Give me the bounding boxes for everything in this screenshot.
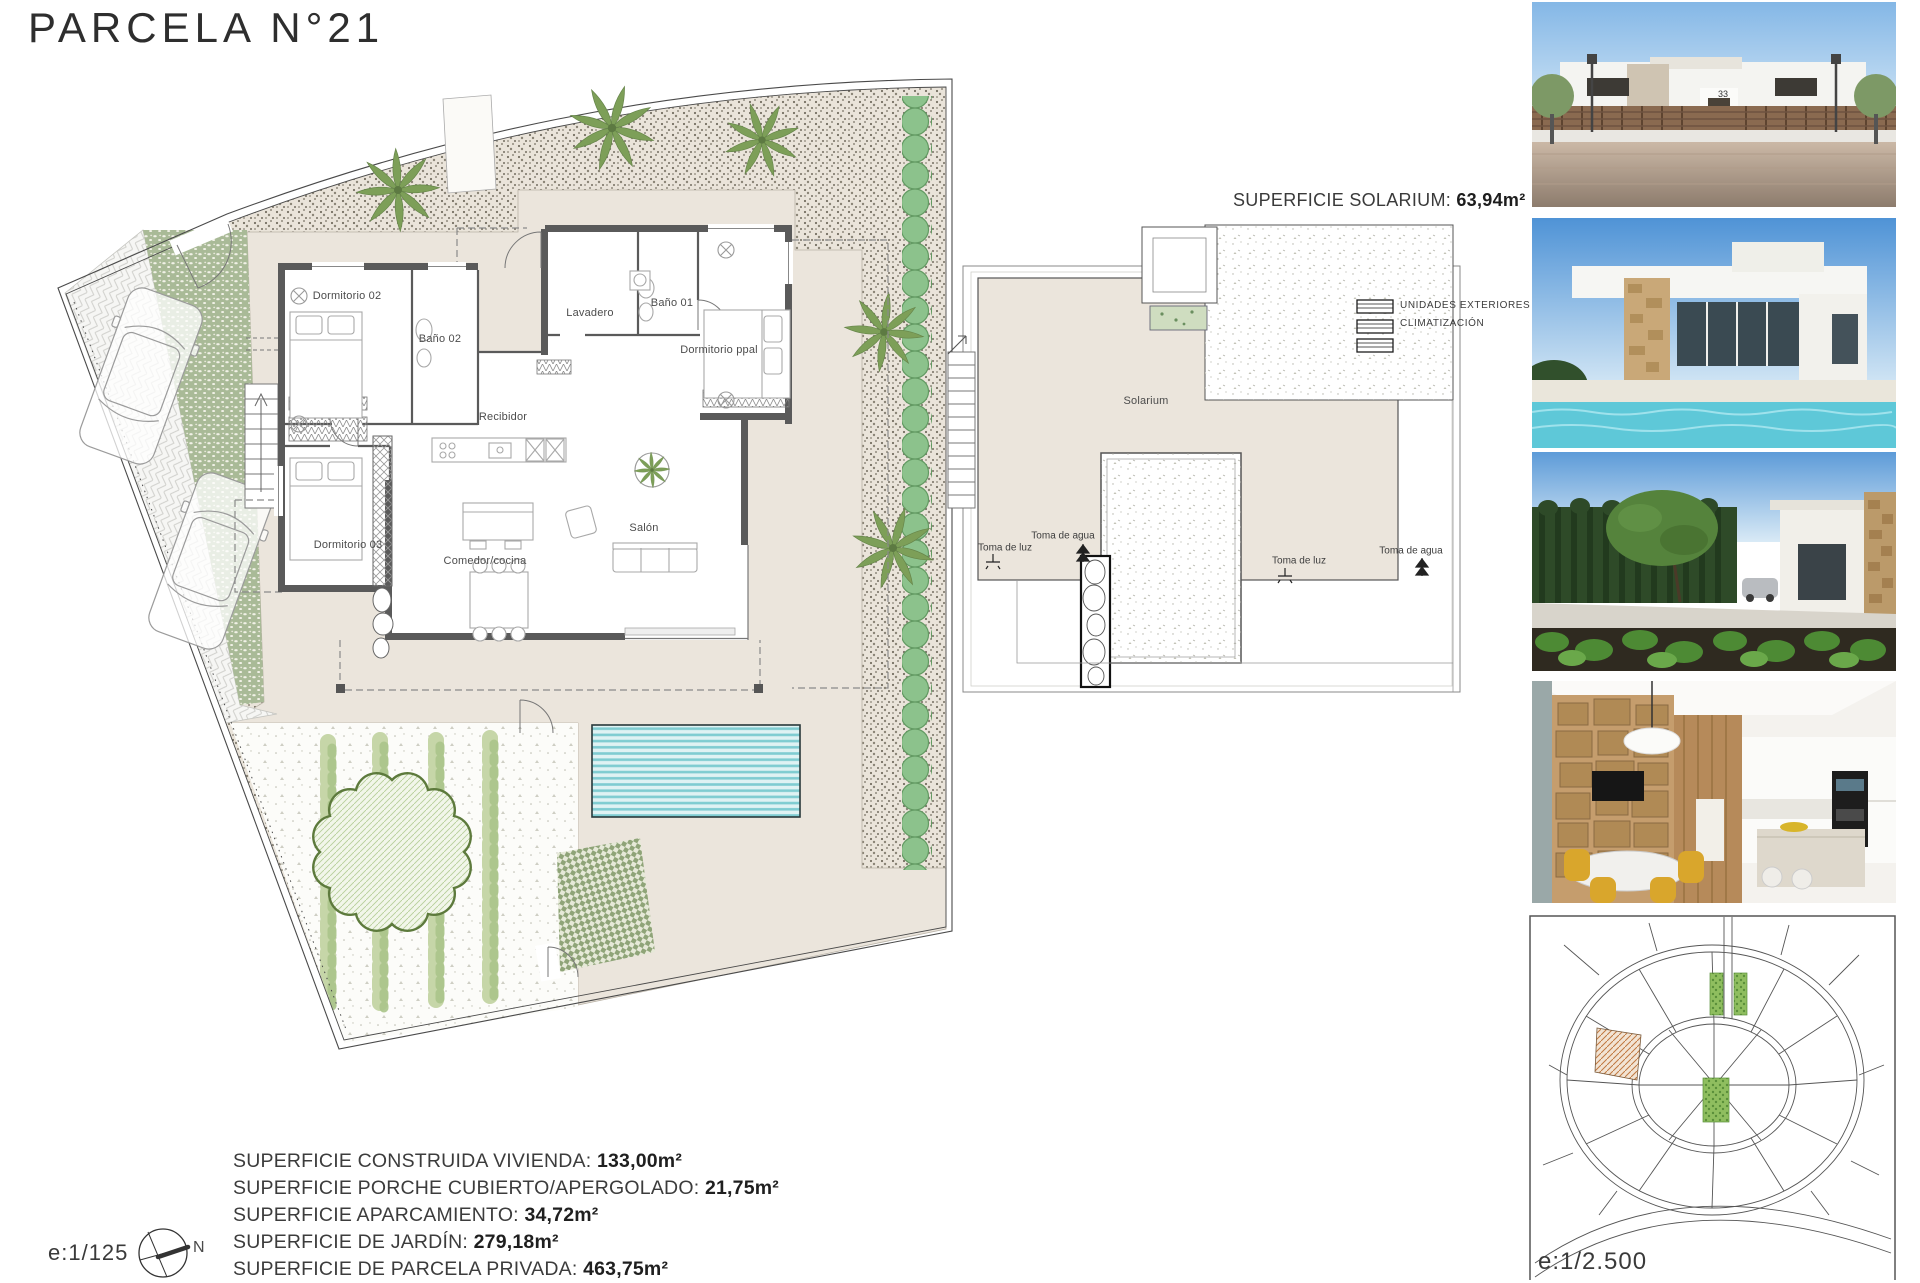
water-supply-label: Toma de agua (1031, 531, 1094, 542)
garden (230, 723, 578, 1043)
solarium-heading-label: SUPERFICIE SOLARIUM: (1233, 190, 1451, 210)
surface-value: 463,75m² (583, 1258, 668, 1280)
room-label-lavadero: Lavadero (566, 307, 613, 319)
house-number: 33 (1718, 89, 1728, 99)
garden-tree (313, 773, 471, 931)
photo-interior-kitchen-image (1532, 681, 1896, 903)
pool (592, 725, 800, 817)
stone-pillar (373, 436, 392, 586)
ac-units-label-line1: UNIDADES EXTERIORES (1400, 300, 1530, 311)
solarium-stairs (948, 336, 975, 508)
plan-scale: e:1/125 (48, 1240, 128, 1266)
room-label-dormitorio-02: Dormitorio 02 (313, 290, 382, 302)
solarium-plan (948, 225, 1460, 692)
surface-value: 21,75m² (705, 1177, 779, 1199)
plan-sheet: { "page": { "title": "PARCELA N°21" }, "… (0, 0, 1920, 1280)
surface-value: 34,72m² (524, 1204, 598, 1226)
room-label-bano-02: Baño 02 (419, 333, 461, 345)
photo-villa-front: 33 (1532, 2, 1896, 207)
solarium-heading-value: 63,94m² (1456, 190, 1525, 210)
water-supply-label: Toma de agua (1379, 546, 1442, 557)
photo-interior-kitchen (1532, 681, 1896, 903)
surface-label: SUPERFICIE CONSTRUIDA VIVIENDA: (233, 1150, 591, 1172)
north-label: N (193, 1239, 205, 1257)
surface-value: 279,18m² (474, 1231, 559, 1253)
map-highlighted-parcel (1595, 1028, 1641, 1080)
surface-value: 133,00m² (597, 1150, 682, 1172)
surface-label: SUPERFICIE DE JARDÍN: (233, 1231, 468, 1253)
location-map (1529, 915, 1896, 1280)
surface-row: SUPERFICIE DE PARCELA PRIVADA: 463,75m² (233, 1256, 779, 1283)
photo-villa-pool-image (1532, 218, 1896, 448)
checker-paving (557, 838, 655, 972)
map-scale: e:1/2.500 (1538, 1248, 1647, 1276)
solarium-area-label: Solarium (1123, 395, 1168, 407)
ac-units-label-line2: CLIMATIZACIÓN (1400, 318, 1484, 329)
roof-planter (1150, 306, 1207, 330)
photo-villa-front-image: 33 (1532, 2, 1896, 207)
surface-label: SUPERFICIE DE PARCELA PRIVADA: (233, 1258, 577, 1280)
photo-villa-pool (1532, 218, 1896, 448)
light-supply-label: Toma de luz (978, 543, 1032, 554)
room-label-bano-01: Baño 01 (651, 297, 693, 309)
room-label-recibidor: Recibidor (479, 411, 527, 423)
surface-row: SUPERFICIE DE JARDÍN: 279,18m² (233, 1229, 779, 1256)
lower-roof (1101, 453, 1241, 663)
stone-wall-strip (1081, 556, 1110, 687)
ac-units-area (1205, 225, 1453, 400)
photo-villa-garden (1532, 452, 1896, 671)
room-label-salon: Salón (629, 522, 658, 534)
surface-row: SUPERFICIE APARCAMIENTO: 34,72m² (233, 1202, 779, 1229)
light-supply-label: Toma de luz (1272, 556, 1326, 567)
photo-villa-garden-image (1532, 452, 1896, 671)
surface-label: SUPERFICIE PORCHE CUBIERTO/APERGOLADO: (233, 1177, 699, 1199)
room-label-dormitorio-ppal: Dormitorio ppal (680, 344, 758, 356)
entry-walkway (440, 82, 499, 193)
room-label-dormitorio-03: Dormitorio 03 (314, 539, 383, 551)
solarium-heading: SUPERFICIE SOLARIUM: 63,94m² (1233, 190, 1526, 211)
compass-icon (139, 1229, 188, 1277)
roof-chimney (1142, 227, 1217, 303)
room-label-comedor-cocina: Comedor/cocina (444, 555, 527, 567)
hedge (902, 96, 932, 870)
surface-areas-list: SUPERFICIE CONSTRUIDA VIVIENDA: 133,00m²… (233, 1148, 779, 1283)
surface-label: SUPERFICIE APARCAMIENTO: (233, 1204, 519, 1226)
surface-row: SUPERFICIE CONSTRUIDA VIVIENDA: 133,00m² (233, 1148, 779, 1175)
surface-row: SUPERFICIE PORCHE CUBIERTO/APERGOLADO: 2… (233, 1175, 779, 1202)
location-map-drawing (1529, 915, 1896, 1280)
